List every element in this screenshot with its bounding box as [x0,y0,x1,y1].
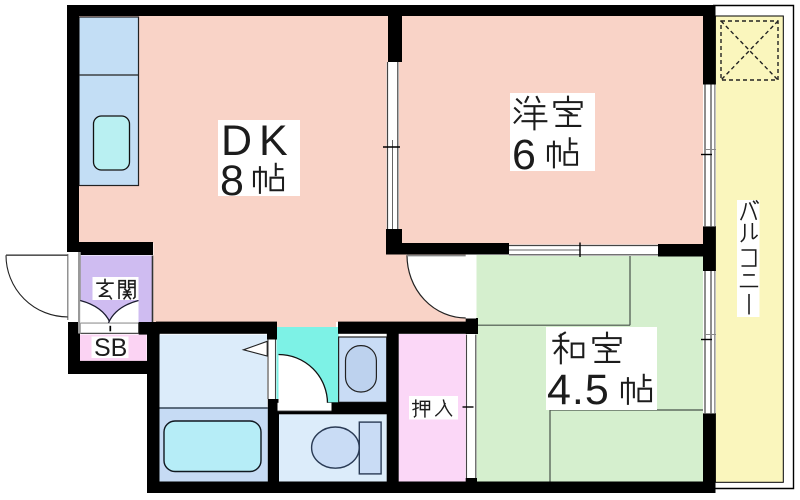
svg-text:SB: SB [94,334,127,362]
svg-text:8: 8 [220,157,244,205]
svg-text:4.5: 4.5 [547,366,610,414]
svg-text:6: 6 [512,131,536,179]
